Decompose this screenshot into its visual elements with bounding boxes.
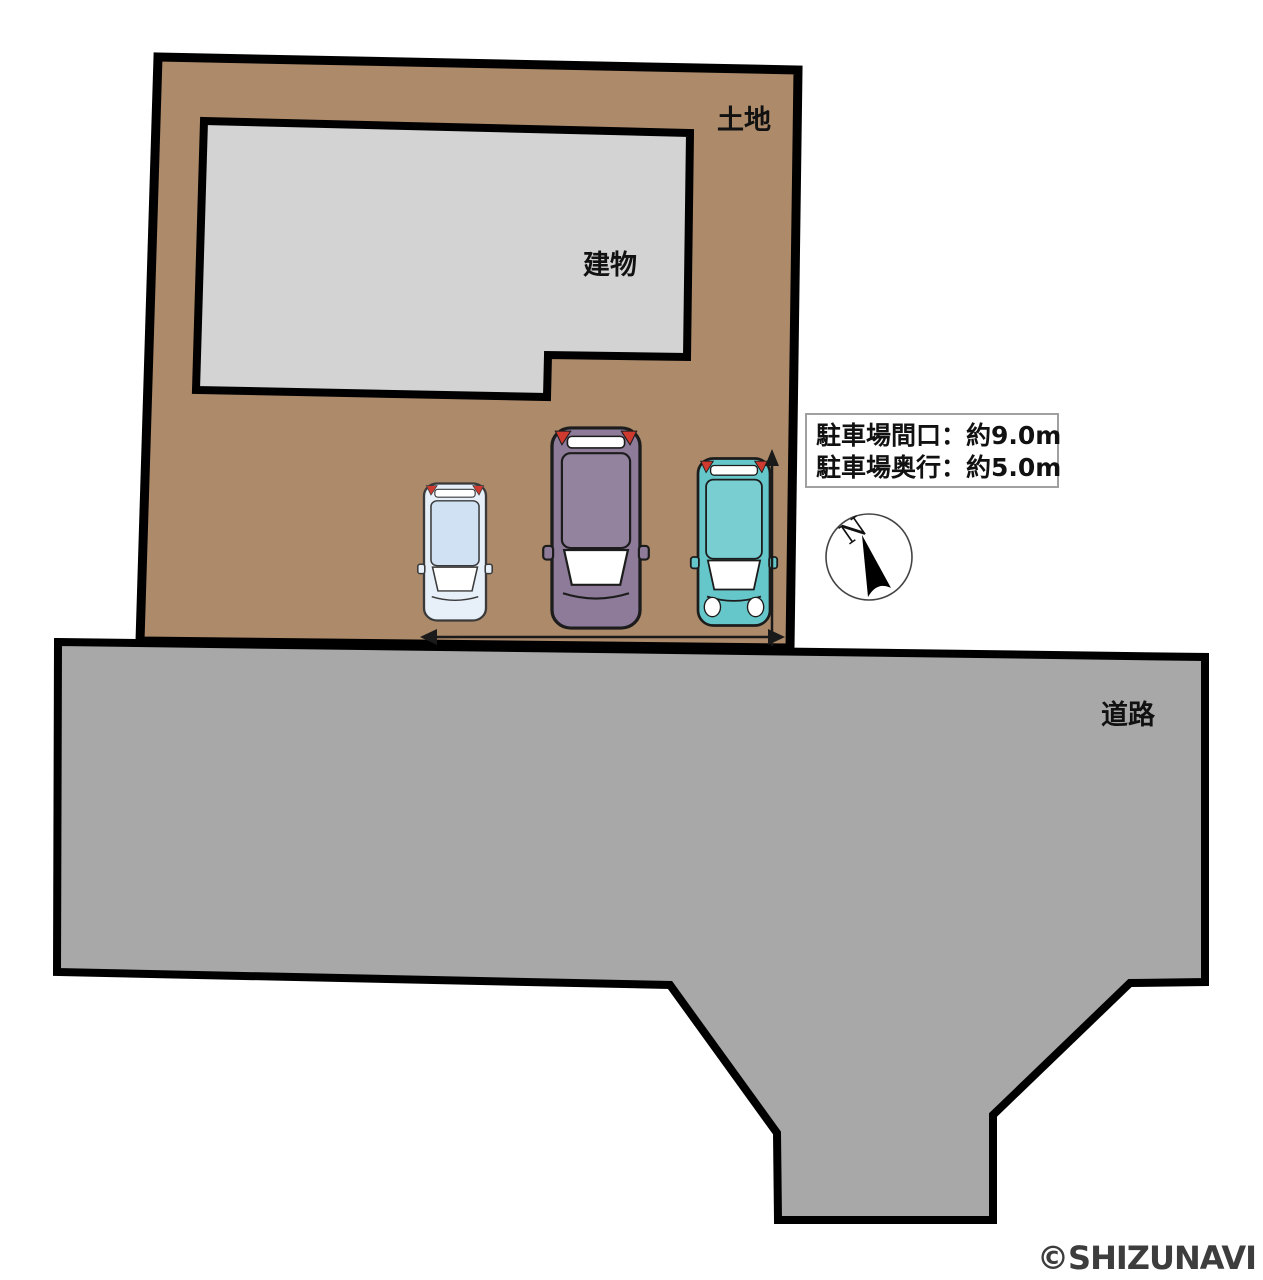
car-minivan-mirror-left [543, 546, 553, 560]
car-hatchback [691, 458, 777, 625]
building: 建物 [196, 121, 690, 397]
car-minivan-roof [562, 453, 630, 548]
car-minivan-mirror-right [639, 546, 649, 560]
parking-depth-text: 駐車場奥行：約5.0m [816, 453, 1061, 482]
parking-frontage-text: 駐車場間口：約9.0m [816, 421, 1061, 450]
car-kei [418, 484, 492, 621]
parking-info-box: 駐車場間口：約9.0m 駐車場奥行：約5.0m [806, 414, 1061, 487]
car-kei-mirror-right [485, 564, 492, 573]
car-minivan-rear-window [567, 436, 624, 448]
car-hatchback-roof [706, 480, 762, 559]
road-area: 道路 [57, 642, 1205, 1220]
road-label: 道路 [1101, 699, 1156, 731]
car-hatchback-rear-window [711, 466, 758, 476]
car-hatchback-headlight-left [704, 597, 720, 616]
car-kei-windshield [433, 567, 478, 591]
car-minivan-windshield [564, 550, 628, 585]
site-plan-canvas: 道路 土地 建物 [0, 0, 1263, 1280]
car-hatchback-windshield [708, 560, 760, 589]
building-label: 建物 [583, 250, 637, 281]
site-plan-page: 道路 土地 建物 [0, 0, 1263, 1280]
car-kei-roof [431, 501, 479, 566]
car-kei-rear-window [435, 489, 475, 497]
car-hatchback-mirror-left [691, 557, 699, 568]
road-shape [57, 642, 1205, 1220]
watermark-logo: ©SHIZUNAVI [1037, 1239, 1256, 1277]
car-minivan [543, 428, 649, 628]
north-compass: N [826, 510, 912, 600]
land-label: 土地 [717, 105, 771, 136]
car-kei-mirror-left [418, 564, 425, 573]
car-hatchback-headlight-right [748, 597, 764, 616]
